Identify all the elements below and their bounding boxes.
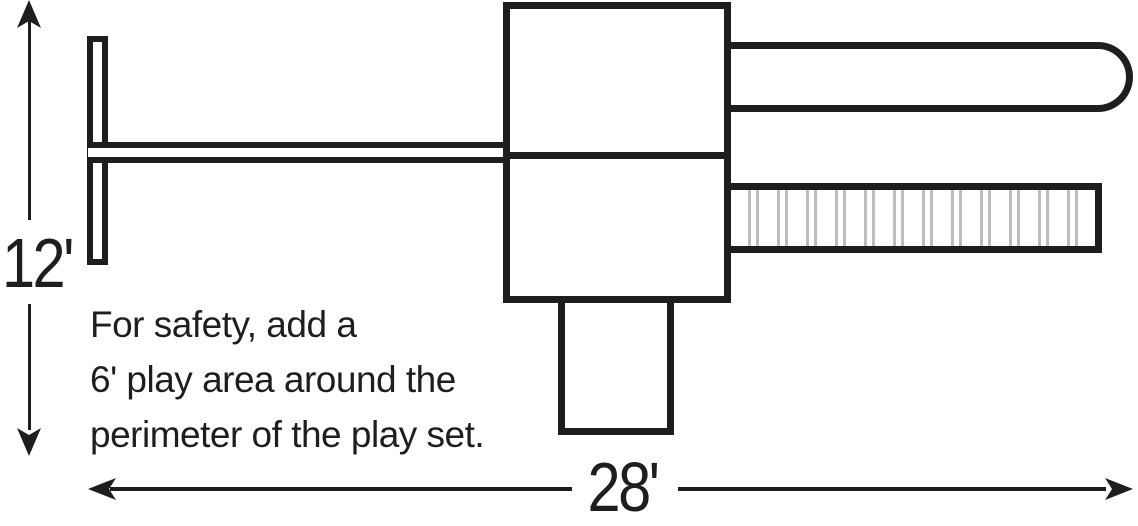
ladder-rung [835, 190, 846, 246]
ladder-rung [980, 190, 991, 246]
ladder-rung [864, 190, 875, 246]
width-dimension-label: 28' [574, 456, 672, 518]
vertical-dimension-line-upper [28, 12, 31, 220]
safety-note-line: For safety, add a [90, 297, 484, 352]
entry-platform [558, 303, 674, 435]
ladder-rung [893, 190, 904, 246]
vertical-dimension-line-lower [28, 304, 31, 430]
safety-note-line: 6' play area around the [90, 352, 484, 407]
ladder-rung [777, 190, 788, 246]
height-dimension-label: 12' [2, 232, 72, 294]
play-set-diagram: 12' For safety, add a 6' play area aroun… [0, 0, 1138, 526]
ladder-rung [922, 190, 933, 246]
ladder-rung [806, 190, 817, 246]
slide [731, 42, 1133, 112]
arrow-down-icon [17, 428, 41, 456]
ladder-rung [1009, 190, 1020, 246]
tower-deck [503, 2, 731, 303]
ladder-rung [1067, 190, 1078, 246]
horizontal-dimension-line-left [110, 487, 572, 491]
safety-note-line: perimeter of the play set. [90, 407, 484, 462]
ladder-rung [1038, 190, 1049, 246]
swing-beam [88, 142, 504, 163]
tower-deck-divider [510, 152, 724, 159]
ladder-rung [748, 190, 759, 246]
ladder [731, 183, 1102, 253]
horizontal-dimension-line-right [678, 487, 1106, 491]
arrow-right-icon [1105, 478, 1133, 500]
ladder-rung [951, 190, 962, 246]
safety-note: For safety, add a 6' play area around th… [90, 297, 484, 462]
